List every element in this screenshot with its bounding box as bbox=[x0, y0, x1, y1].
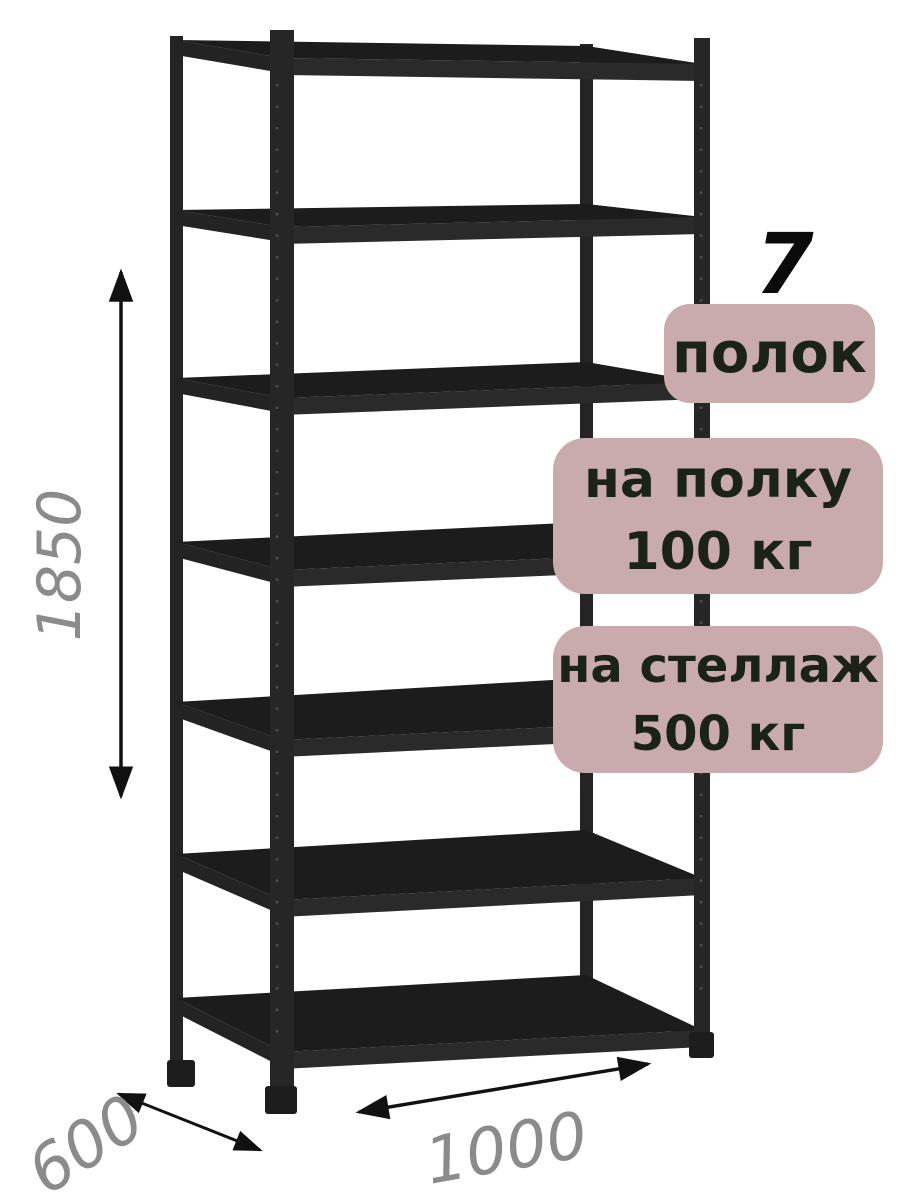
rack-illustration: 1850 600 1000 bbox=[0, 0, 900, 1200]
height-dimension-label: 1850 bbox=[25, 489, 95, 642]
shelf-count-badge: полок bbox=[664, 304, 875, 403]
rack-shelf bbox=[176, 362, 702, 415]
product-image: 1850 600 1000 7 полок на полку 100 кг на… bbox=[0, 0, 900, 1200]
per-rack-load-line2: 500 кг bbox=[553, 700, 883, 768]
rack-shelf bbox=[176, 40, 702, 81]
per-shelf-load-badge: на полку 100 кг bbox=[553, 438, 883, 594]
per-rack-load-line1: на стеллаж bbox=[553, 632, 883, 700]
width-dimension-label: 1000 bbox=[420, 1098, 593, 1199]
per-shelf-load-line2: 100 кг bbox=[553, 516, 883, 588]
rack-shelf bbox=[176, 830, 702, 917]
shelf-count-label: полок bbox=[672, 321, 867, 386]
per-rack-load-badge: на стеллаж 500 кг bbox=[553, 626, 883, 773]
width-dimension-arrow bbox=[359, 1064, 648, 1112]
depth-dimension-label: 600 bbox=[15, 1081, 158, 1200]
rack-shelf bbox=[176, 204, 702, 244]
shelf-count-number: 7 bbox=[742, 222, 827, 306]
rack-shelf bbox=[176, 975, 702, 1069]
per-shelf-load-line1: на полку bbox=[553, 444, 883, 516]
